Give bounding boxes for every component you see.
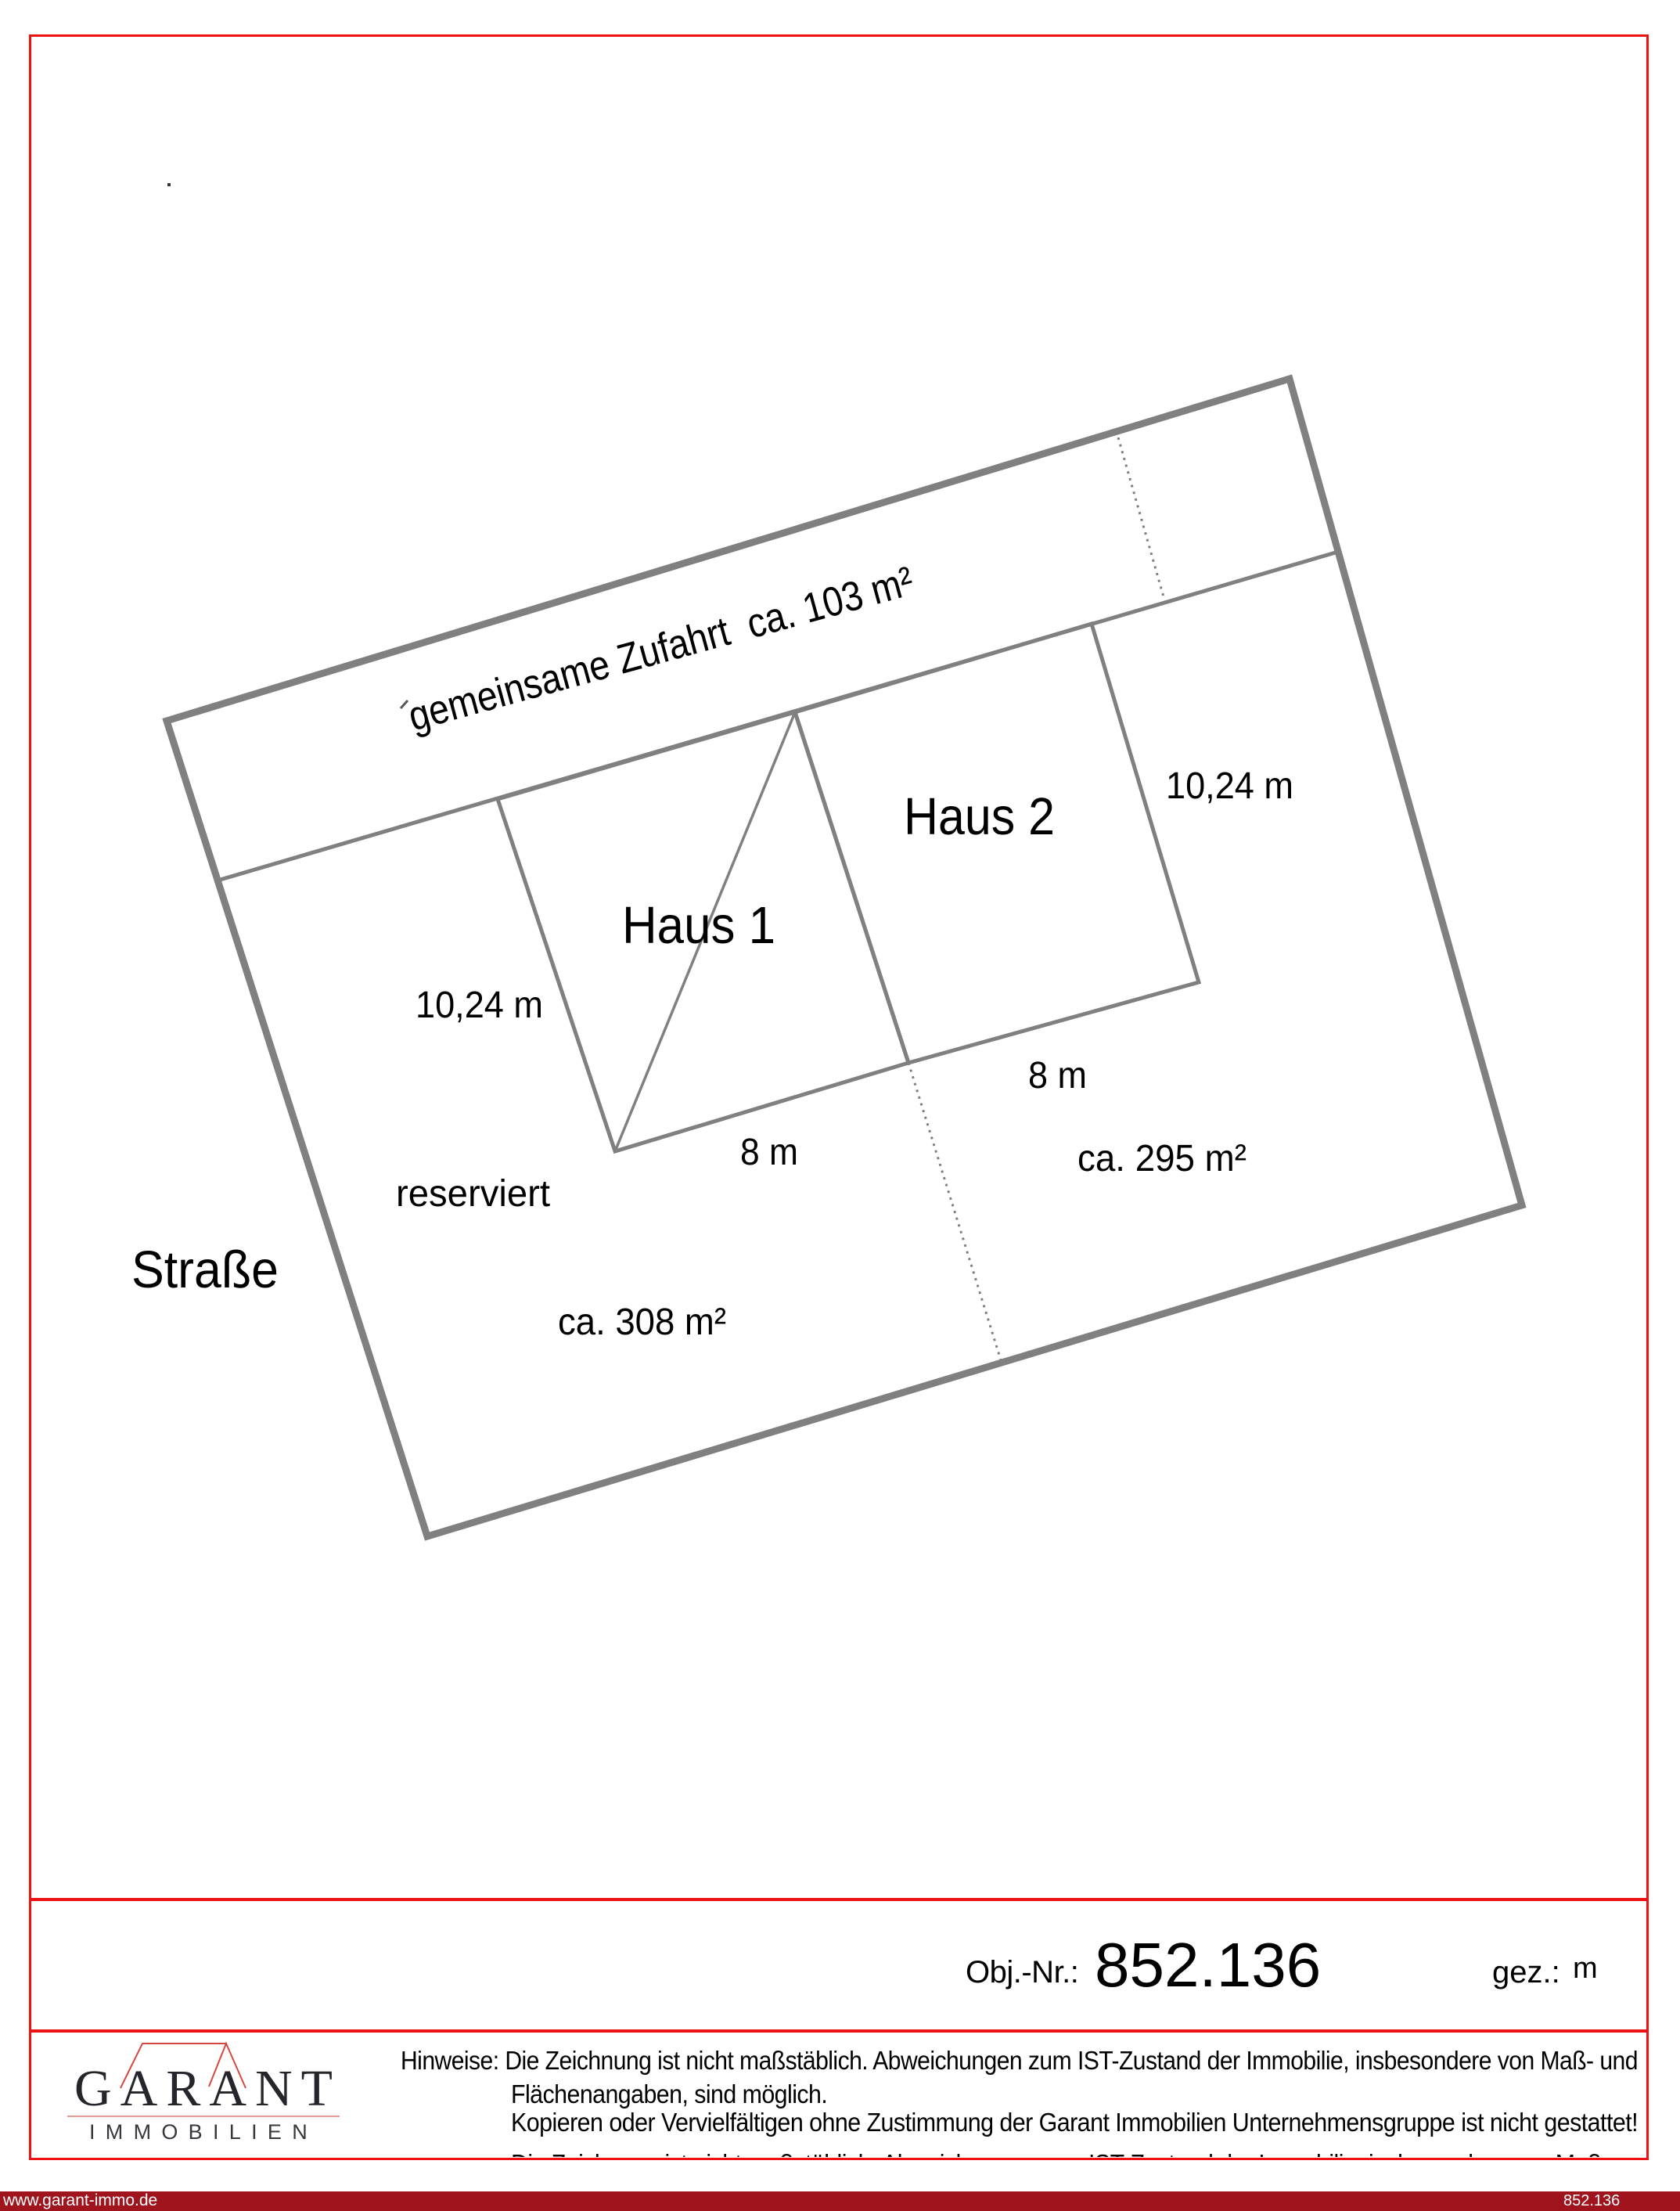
svg-text:10,24 m: 10,24 m	[1166, 765, 1293, 807]
svg-text:gemeinsame Zufahrt ca. 103 m²: gemeinsame Zufahrt ca. 103 m²	[404, 558, 919, 740]
svg-text:reserviert: reserviert	[396, 1173, 550, 1215]
svg-text:8 m: 8 m	[740, 1132, 798, 1173]
svg-text:ca. 308 m²: ca. 308 m²	[558, 1302, 726, 1343]
svg-text:10,24 m: 10,24 m	[416, 985, 543, 1026]
svg-text:ca. 295 m²: ca. 295 m²	[1077, 1138, 1247, 1179]
svg-text:Straße: Straße	[131, 1241, 279, 1299]
svg-text:Haus 1: Haus 1	[622, 896, 775, 955]
svg-text:Haus 2: Haus 2	[904, 787, 1055, 846]
svg-text:8 m: 8 m	[1028, 1055, 1087, 1096]
